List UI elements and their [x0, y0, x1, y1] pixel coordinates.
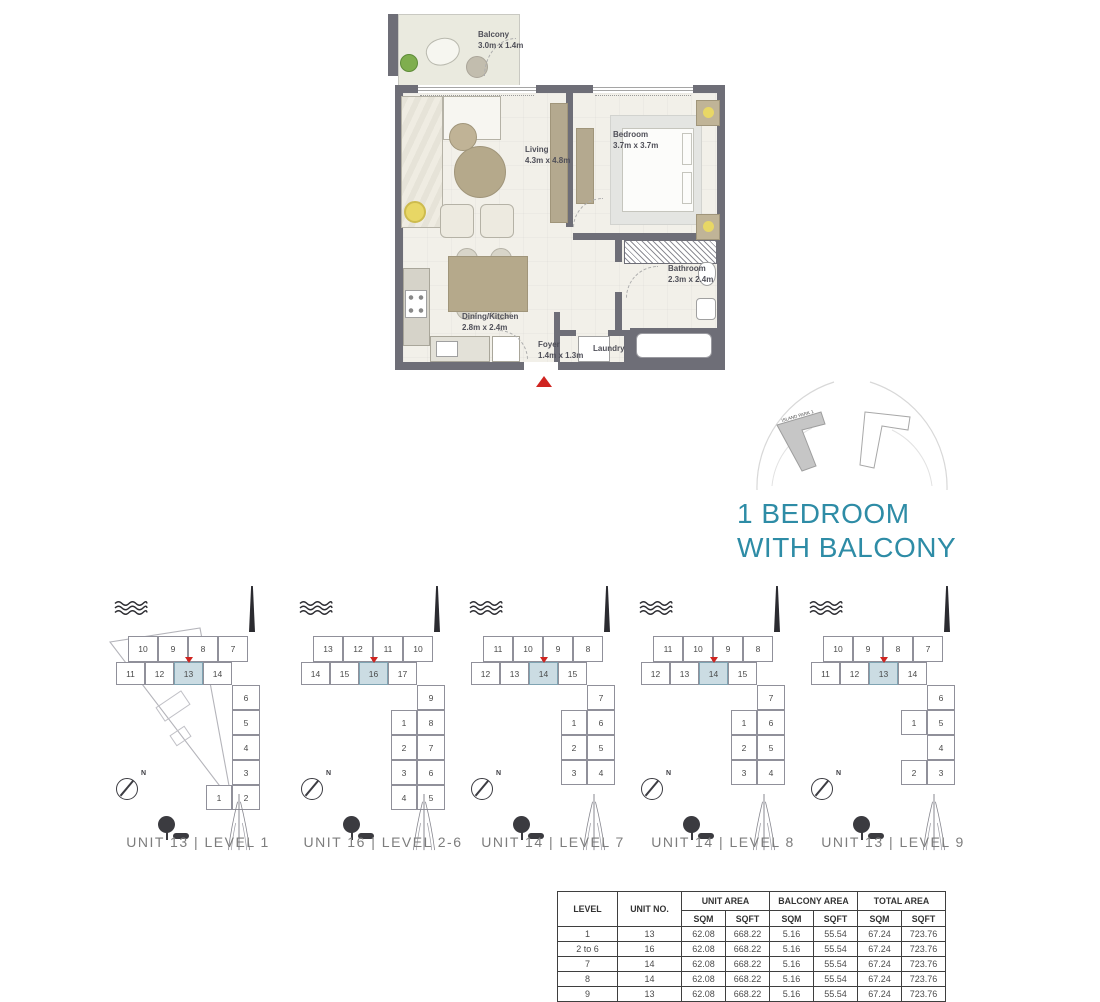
unit-cell: 9 [543, 636, 573, 662]
unit-cell: 3 [232, 760, 260, 785]
unit-cell: 7 [218, 636, 248, 662]
table-cell: 5.16 [770, 972, 814, 987]
unit-cell: 3 [561, 760, 587, 785]
unit-cell: 2 [731, 735, 757, 760]
unit-cell: 5 [587, 735, 615, 760]
unit-marker-icon [540, 657, 548, 663]
col-group-header-2: TOTAL AREA [858, 892, 946, 911]
unit-cell: 6 [757, 710, 785, 735]
cooktop [405, 290, 427, 318]
table-cell: 8 [558, 972, 618, 987]
dining-table [448, 256, 528, 312]
unit-marker-icon [185, 657, 193, 663]
wall-laundry-top-a [560, 330, 576, 336]
room-name: Bathroom [668, 264, 706, 275]
wall-bottom [395, 362, 725, 370]
table-cell: 723.76 [902, 987, 946, 1002]
unit-cell: 9 [713, 636, 743, 662]
unit-cell: 12 [641, 662, 670, 685]
table-cell: 62.08 [682, 927, 726, 942]
unit-cell: 9 [417, 685, 445, 710]
table-cell: 55.54 [814, 957, 858, 972]
compass-n-label: N [326, 770, 331, 777]
unit-cell: 9 [853, 636, 883, 662]
title-line-2: WITH BALCONY [737, 531, 956, 565]
unit-cell: 3 [391, 760, 417, 785]
table-cell: 55.54 [814, 972, 858, 987]
unit-cell: 1 [901, 710, 927, 735]
plant-icon [400, 54, 418, 72]
unit-cell: 6 [587, 710, 615, 735]
room-dims: 2.8m x 2.4m [462, 323, 507, 334]
lamp-icon [703, 107, 714, 118]
area-table-container: LEVELUNIT NO.UNIT AREABALCONY AREATOTAL … [557, 891, 946, 1002]
table-cell: 13 [618, 927, 682, 942]
unit-cell: 13 [670, 662, 699, 685]
room-name: Living [525, 145, 549, 156]
col-header-sqft: SQFT [726, 911, 770, 927]
col-header-level: LEVEL [558, 892, 618, 927]
table-cell: 723.76 [902, 927, 946, 942]
table-cell: 2 to 6 [558, 942, 618, 957]
unit-cell: 5 [232, 710, 260, 735]
table-cell: 5.16 [770, 927, 814, 942]
armchair [480, 204, 514, 238]
table-cell: 67.24 [858, 927, 902, 942]
unit-cell: 11 [373, 636, 403, 662]
diagram-label: UNIT 14 | LEVEL 8 [633, 834, 813, 850]
unit-cell: 15 [330, 662, 359, 685]
area-table: LEVELUNIT NO.UNIT AREABALCONY AREATOTAL … [557, 891, 946, 1002]
unit-cell: 14 [203, 662, 232, 685]
unit-cell: 15 [558, 662, 587, 685]
unit-cell: 2 [901, 760, 927, 785]
table-cell: 67.24 [858, 972, 902, 987]
table-cell: 668.22 [726, 987, 770, 1002]
unit-cell: 7 [417, 735, 445, 760]
unit-cell: 8 [188, 636, 218, 662]
table-cell: 1 [558, 927, 618, 942]
table-cell: 14 [618, 972, 682, 987]
bedroom-window [593, 85, 693, 93]
kitchen-sink [436, 341, 458, 357]
wall-bath-left-b [615, 292, 622, 334]
room-dims: 2.3m x 2.4m [668, 275, 713, 286]
page-title: 1 BEDROOM WITH BALCONY [737, 497, 956, 565]
table-row: 91362.08668.225.1655.5467.24723.76 [558, 987, 946, 1002]
floor-lamp [404, 201, 426, 223]
col-header-unit-no: UNIT NO. [618, 892, 682, 927]
sink [696, 298, 716, 320]
water-waves-icon [299, 600, 333, 616]
diagram-label: UNIT 14 | LEVEL 7 [463, 834, 643, 850]
unit-cell: 2 [391, 735, 417, 760]
level-diagram-2: 1312111014151617918273645NUNIT 16 | LEVE… [293, 586, 473, 866]
room-name: Bedroom [613, 130, 648, 141]
water-waves-icon [809, 600, 843, 616]
unit-cell: 7 [913, 636, 943, 662]
unit-cell: 8 [883, 636, 913, 662]
spire-landmark-icon [601, 586, 613, 634]
spire-landmark-icon [771, 586, 783, 634]
spire-landmark-icon [431, 586, 443, 634]
building-plan: 1312111014151617918273645 [301, 636, 469, 816]
spire-landmark-icon [941, 586, 953, 634]
table-row: 2 to 61662.08668.225.1655.5467.24723.76 [558, 942, 946, 957]
bathtub [636, 333, 712, 358]
room-name: Balcony [478, 30, 509, 41]
building-plan: 1098711121314654312 [116, 636, 284, 816]
unit-cell: 14 [898, 662, 927, 685]
compass-n-label: N [496, 770, 501, 777]
compass-needle [645, 780, 659, 796]
room-dims: 3.7m x 3.7m [613, 141, 658, 152]
water-waves-icon [469, 600, 503, 616]
unit-cell-highlighted: 14 [529, 662, 558, 685]
unit-cell: 4 [927, 735, 955, 760]
table-row: 71462.08668.225.1655.5467.24723.76 [558, 957, 946, 972]
unit-cell: 4 [232, 735, 260, 760]
unit-cell-highlighted: 13 [869, 662, 898, 685]
unit-marker-icon [370, 657, 378, 663]
armchair [440, 204, 474, 238]
room-dims: 4.3m x 4.8m [525, 156, 570, 167]
table-cell: 55.54 [814, 942, 858, 957]
diagram-label: UNIT 13 | LEVEL 9 [803, 834, 983, 850]
pillow [682, 133, 692, 165]
unit-cell: 15 [728, 662, 757, 685]
unit-cell: 13 [313, 636, 343, 662]
compass-needle [815, 780, 829, 796]
lamp-icon [703, 221, 714, 232]
table-cell: 668.22 [726, 927, 770, 942]
living-window [418, 85, 536, 93]
unit-cell: 12 [343, 636, 373, 662]
table-cell: 62.08 [682, 942, 726, 957]
title-line-1: 1 BEDROOM [737, 497, 956, 531]
unit-cell: 10 [128, 636, 158, 662]
pillow [682, 172, 692, 204]
unit-cell: 11 [483, 636, 513, 662]
water-waves-icon [639, 600, 673, 616]
unit-cell: 14 [301, 662, 330, 685]
adjacent-building-footprint [860, 412, 910, 468]
wardrobe [624, 240, 717, 264]
compass-north-icon: N [116, 778, 138, 800]
table-cell: 67.24 [858, 942, 902, 957]
unit-cell: 6 [232, 685, 260, 710]
unit-cell: 11 [811, 662, 840, 685]
table-cell: 668.22 [726, 942, 770, 957]
curtain-line [595, 93, 691, 96]
table-cell: 67.24 [858, 957, 902, 972]
room-name: Foyer [538, 340, 560, 351]
table-cell: 16 [618, 942, 682, 957]
water-waves-icon [114, 600, 148, 616]
unit-cell: 1 [391, 710, 417, 735]
dresser [576, 128, 594, 204]
table-cell: 668.22 [726, 957, 770, 972]
unit-cell: 11 [116, 662, 145, 685]
table-row: 81462.08668.225.1655.5467.24723.76 [558, 972, 946, 987]
unit-cell: 4 [757, 760, 785, 785]
unit-cell: 4 [587, 760, 615, 785]
compass-needle [305, 780, 319, 796]
unit-cell: 12 [145, 662, 174, 685]
room-name: Laundry [593, 344, 625, 355]
table-cell: 5.16 [770, 942, 814, 957]
col-header-sqm: SQM [770, 911, 814, 927]
unit-cell: 10 [513, 636, 543, 662]
unit-cell: 12 [840, 662, 869, 685]
col-header-sqft: SQFT [814, 911, 858, 927]
unit-cell: 5 [927, 710, 955, 735]
unit-marker-icon [710, 657, 718, 663]
unit-cell-highlighted: 16 [359, 662, 388, 685]
unit-cell: 3 [731, 760, 757, 785]
room-dims: 1.4m x 1.3m [538, 351, 583, 362]
unit-cell: 3 [927, 760, 955, 785]
room-name: Dining/Kitchen [462, 312, 518, 323]
table-cell: 13 [618, 987, 682, 1002]
table-cell: 55.54 [814, 987, 858, 1002]
unit-cell: 6 [927, 685, 955, 710]
balcony-wall [388, 14, 398, 76]
unit-cell: 8 [573, 636, 603, 662]
table-cell: 5.16 [770, 987, 814, 1002]
table-cell: 723.76 [902, 957, 946, 972]
table-cell: 62.08 [682, 957, 726, 972]
table-cell: 14 [618, 957, 682, 972]
level-diagram-3: 111098121314157162534NUNIT 14 | LEVEL 7 [463, 586, 643, 866]
diagram-label: UNIT 13 | LEVEL 1 [108, 834, 288, 850]
table-cell: 55.54 [814, 927, 858, 942]
table-cell: 723.76 [902, 972, 946, 987]
unit-cell: 7 [757, 685, 785, 710]
compass-north-icon: N [301, 778, 323, 800]
table-cell: 9 [558, 987, 618, 1002]
entry-opening [524, 362, 558, 370]
building-locator-map: ISLAND PARK 1 [742, 368, 962, 498]
col-header-sqm: SQM [682, 911, 726, 927]
unit-cell: 7 [587, 685, 615, 710]
table-cell: 62.08 [682, 987, 726, 1002]
col-header-sqft: SQFT [902, 911, 946, 927]
level-diagram-4: 111098121314157162534NUNIT 14 | LEVEL 8 [633, 586, 813, 866]
unit-cell: 1 [561, 710, 587, 735]
table-cell: 67.24 [858, 987, 902, 1002]
unit-cell: 11 [653, 636, 683, 662]
room-dims: 3.0m x 1.4m [478, 41, 523, 52]
unit-cell: 8 [417, 710, 445, 735]
diagram-label: UNIT 16 | LEVEL 2-6 [293, 834, 473, 850]
compass-north-icon: N [811, 778, 833, 800]
level-diagram-1: 1098711121314654312NUNIT 13 | LEVEL 1 [108, 586, 288, 866]
unit-cell: 5 [757, 735, 785, 760]
wall-bath-left-a [615, 240, 622, 262]
table-cell: 62.08 [682, 972, 726, 987]
col-group-header-1: BALCONY AREA [770, 892, 858, 911]
unit-cell: 17 [388, 662, 417, 685]
table-cell: 668.22 [726, 972, 770, 987]
table-cell: 5.16 [770, 957, 814, 972]
unit-cell: 10 [683, 636, 713, 662]
compass-north-icon: N [641, 778, 663, 800]
building-plan: 1098711121314615423 [811, 636, 979, 816]
entry-arrow-icon [536, 376, 552, 387]
unit-cell: 13 [500, 662, 529, 685]
compass-north-icon: N [471, 778, 493, 800]
table-cell: 723.76 [902, 942, 946, 957]
unit-cell: 10 [823, 636, 853, 662]
compass-needle [475, 780, 489, 796]
col-header-sqm: SQM [858, 911, 902, 927]
floor-plan: Balcony 3.0m x 1.4m Living 4.3m x 4.8m B… [388, 12, 732, 392]
compass-needle [120, 780, 134, 796]
unit-cell: 9 [158, 636, 188, 662]
unit-cell-highlighted: 14 [699, 662, 728, 685]
unit-cell: 10 [403, 636, 433, 662]
unit-cell-highlighted: 13 [174, 662, 203, 685]
level-diagram-5: 1098711121314615423NUNIT 13 | LEVEL 9 [803, 586, 983, 866]
building-plan: 111098121314157162534 [471, 636, 639, 816]
unit-cell: 12 [471, 662, 500, 685]
unit-marker-icon [880, 657, 888, 663]
compass-n-label: N [141, 770, 146, 777]
compass-n-label: N [666, 770, 671, 777]
table-cell: 7 [558, 957, 618, 972]
compass-n-label: N [836, 770, 841, 777]
table-row: 11362.08668.225.1655.5467.24723.76 [558, 927, 946, 942]
unit-cell: 8 [743, 636, 773, 662]
building-plan: 111098121314157162534 [641, 636, 809, 816]
col-group-header-0: UNIT AREA [682, 892, 770, 911]
unit-cell: 2 [561, 735, 587, 760]
coffee-table [454, 146, 506, 198]
side-table [449, 123, 477, 151]
unit-cell: 1 [731, 710, 757, 735]
unit-cell: 6 [417, 760, 445, 785]
